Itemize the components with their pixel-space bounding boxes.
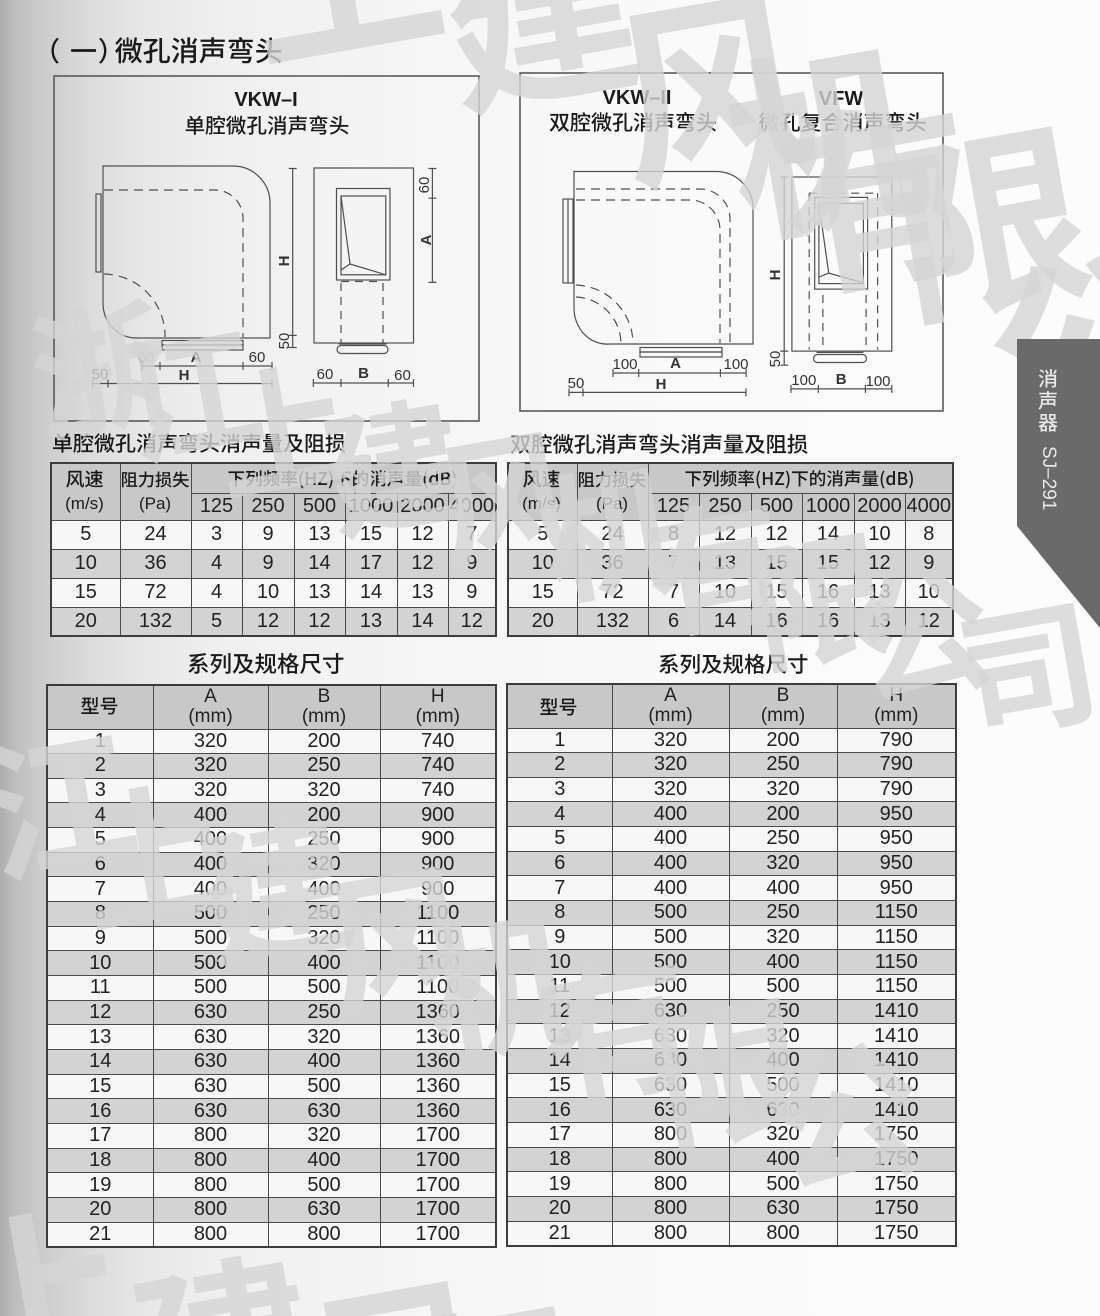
svg-text:60: 60 (394, 367, 411, 384)
svg-text:(Pa): (Pa) (139, 494, 171, 513)
svg-text:60: 60 (138, 349, 155, 366)
svg-text:100: 100 (723, 356, 748, 373)
svg-text:A: A (418, 234, 435, 245)
svg-text:60: 60 (249, 349, 266, 366)
svg-text:50: 50 (92, 366, 109, 383)
svg-text:100: 100 (865, 373, 890, 390)
svg-text:H: H (767, 270, 784, 281)
svg-text:50: 50 (276, 333, 293, 350)
svg-text:100: 100 (791, 372, 816, 389)
svg-text:B: B (358, 365, 369, 382)
svg-text:(m/s): (m/s) (65, 494, 104, 513)
svg-text:(Pa): (Pa) (596, 494, 628, 513)
svg-text:A: A (191, 349, 202, 366)
svg-text:VKW–II: VKW–II (603, 87, 672, 109)
svg-text:SJ–291: SJ–291 (1038, 446, 1059, 510)
svg-text:50: 50 (767, 351, 784, 368)
svg-text:60: 60 (416, 177, 433, 194)
svg-text:50: 50 (568, 375, 585, 392)
svg-text:H: H (276, 256, 293, 267)
svg-text:60: 60 (317, 366, 334, 383)
svg-text:100: 100 (612, 356, 637, 373)
svg-text:VFW: VFW (819, 88, 864, 110)
svg-text:B: B (836, 371, 847, 388)
svg-text:VKW–I: VKW–I (234, 89, 297, 111)
svg-text:A: A (670, 355, 681, 372)
svg-text:H: H (656, 376, 667, 393)
svg-text:H: H (179, 367, 190, 384)
svg-text:(m/s): (m/s) (522, 494, 561, 513)
